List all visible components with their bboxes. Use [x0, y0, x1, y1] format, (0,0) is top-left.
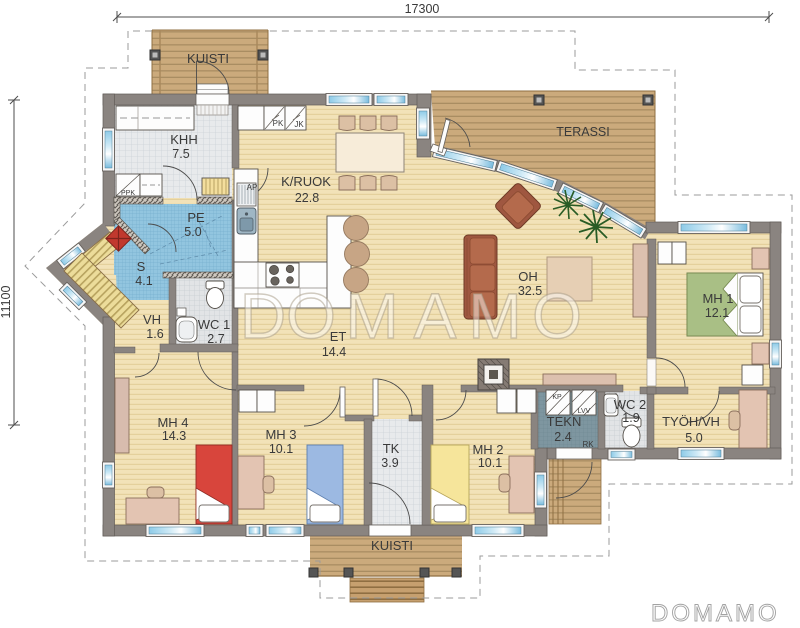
svg-text:VH: VH — [143, 312, 161, 327]
svg-text:TYÖH/VH: TYÖH/VH — [662, 414, 720, 429]
svg-text:3.9: 3.9 — [381, 456, 398, 470]
svg-text:S: S — [137, 259, 146, 274]
svg-text:TK: TK — [383, 441, 400, 456]
svg-text:2.4: 2.4 — [554, 430, 571, 444]
svg-text:5.0: 5.0 — [685, 431, 702, 445]
svg-text:1.6: 1.6 — [146, 327, 163, 341]
svg-text:TEKN: TEKN — [547, 414, 582, 429]
svg-text:4.1: 4.1 — [135, 274, 152, 288]
svg-text:M: M — [345, 280, 398, 352]
svg-text:O: O — [286, 280, 336, 352]
svg-text:7.5: 7.5 — [172, 147, 189, 161]
svg-text:22.8: 22.8 — [295, 191, 319, 205]
svg-text:WC 2: WC 2 — [614, 397, 647, 412]
svg-text:10.1: 10.1 — [269, 442, 293, 456]
svg-text:5.0: 5.0 — [184, 225, 201, 239]
svg-text:AP: AP — [247, 183, 258, 192]
svg-text:12.1: 12.1 — [705, 306, 729, 320]
svg-text:JK: JK — [294, 120, 304, 129]
svg-text:11100: 11100 — [0, 286, 13, 319]
svg-text:KUISTI: KUISTI — [371, 538, 413, 553]
svg-text:KHH: KHH — [170, 132, 197, 147]
svg-text:KP: KP — [552, 394, 562, 401]
svg-text:14.3: 14.3 — [162, 429, 186, 443]
svg-text:A: A — [414, 280, 457, 352]
svg-text:MH 2: MH 2 — [472, 442, 503, 457]
svg-text:O: O — [532, 280, 582, 352]
svg-text:K/RUOK: K/RUOK — [281, 174, 331, 189]
svg-text:RK: RK — [582, 440, 594, 449]
svg-text:M: M — [468, 280, 521, 352]
svg-text:2.7: 2.7 — [207, 332, 224, 346]
svg-text:PPK: PPK — [121, 190, 135, 197]
svg-text:10.1: 10.1 — [478, 456, 502, 470]
svg-text:1.9: 1.9 — [622, 411, 639, 425]
svg-text:TERASSI: TERASSI — [556, 125, 610, 139]
svg-text:PE: PE — [187, 210, 205, 225]
svg-text:DOMAMO: DOMAMO — [651, 600, 780, 627]
svg-text:KUISTI: KUISTI — [187, 51, 229, 66]
svg-text:WC 1: WC 1 — [198, 317, 231, 332]
svg-text:MH 1: MH 1 — [702, 291, 733, 306]
svg-text:MH 3: MH 3 — [265, 427, 296, 442]
svg-text:D: D — [240, 280, 286, 352]
svg-text:LVV: LVV — [578, 408, 591, 415]
svg-text:PK: PK — [273, 119, 284, 128]
svg-text:17300: 17300 — [405, 2, 440, 16]
svg-text:MH 4: MH 4 — [157, 415, 188, 430]
